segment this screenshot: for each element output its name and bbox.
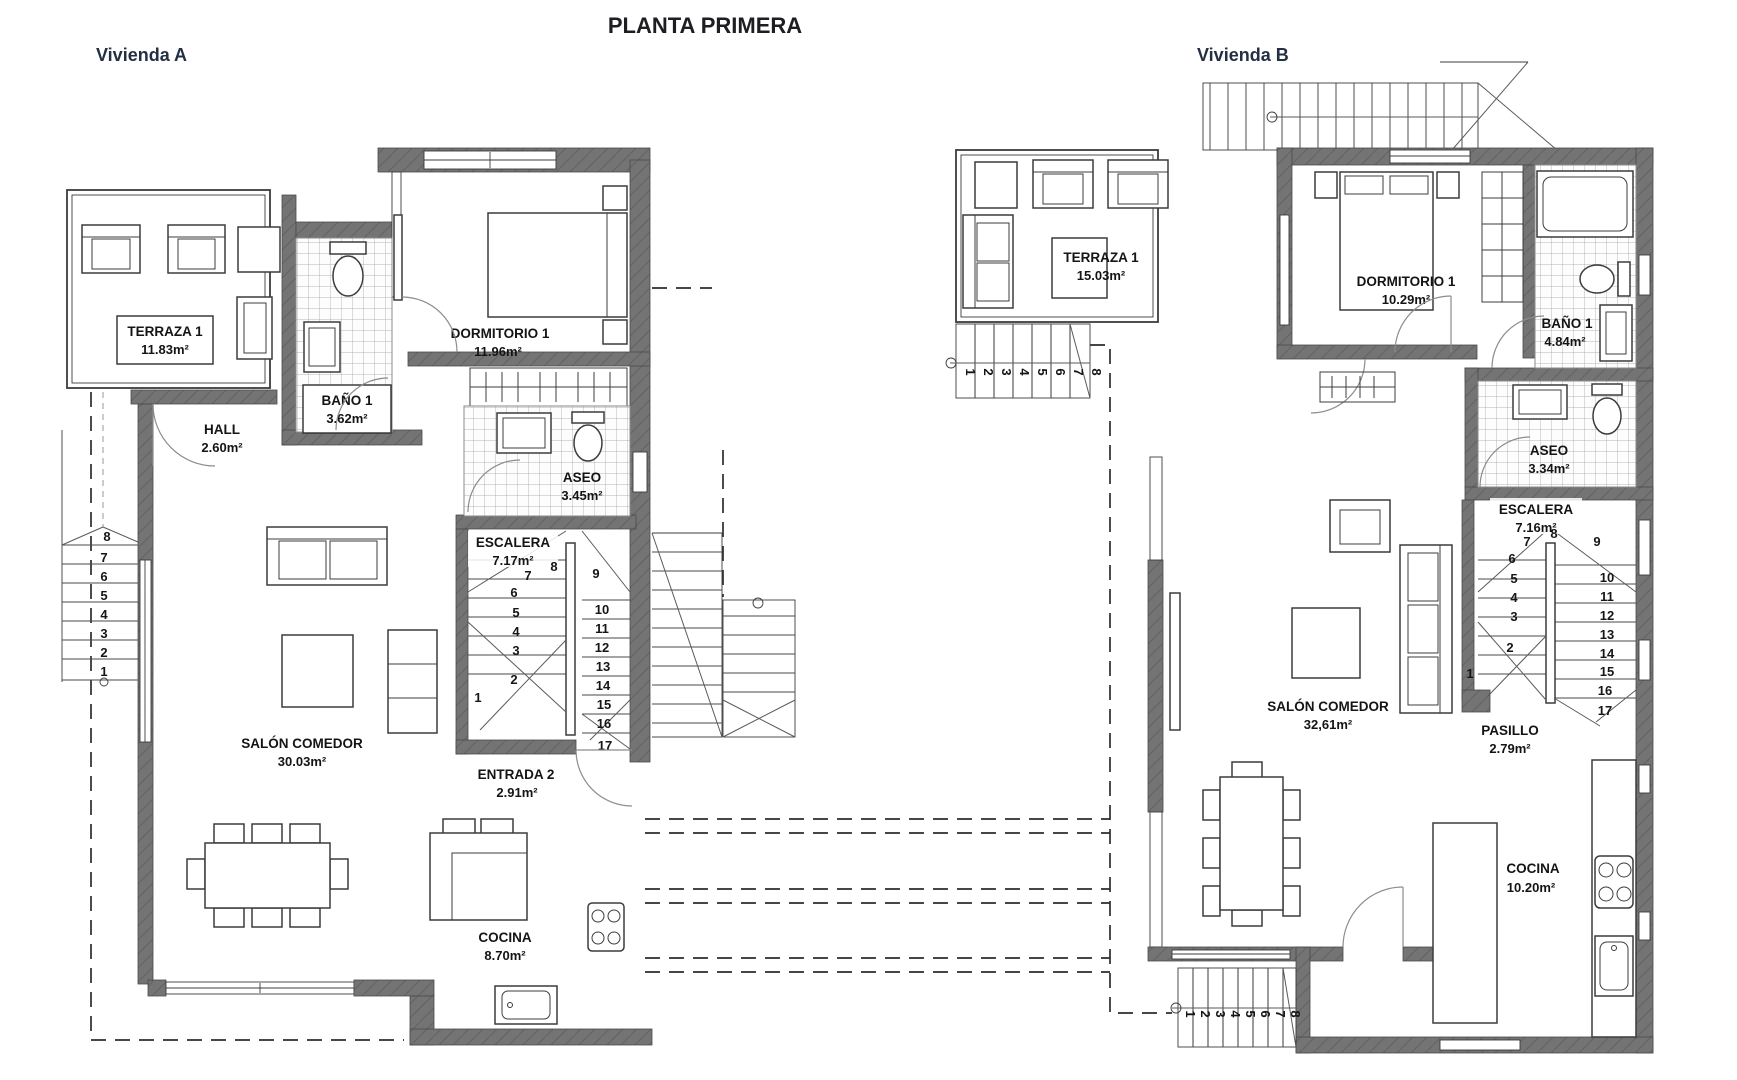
- stair-number: 7: [100, 550, 107, 565]
- room-area: 2.91m²: [496, 785, 538, 800]
- stair-railing: [1546, 543, 1555, 703]
- room-area: 10.29m²: [1382, 292, 1431, 307]
- stair-number: 2: [100, 645, 107, 660]
- room-area: 2.60m²: [201, 440, 243, 455]
- aseo-b: ASEO 3.34m²: [1478, 381, 1636, 487]
- sink-icon: [1595, 936, 1633, 996]
- stair-number: 3: [100, 626, 107, 641]
- salon-comedor-a: SALÓN COMEDOR 30.03m²: [187, 527, 437, 927]
- stair-number: 8: [1288, 1010, 1303, 1017]
- room-area: 11.96m²: [474, 344, 522, 359]
- escalera-b: ESCALERA 7.16m² 1 2 3 4 5 6 7 8 9 10 11 …: [1466, 498, 1636, 726]
- closet-rail-icon: [1320, 372, 1395, 402]
- terrace-a-armchair-icon: [168, 225, 225, 273]
- sofa-icon: [1400, 545, 1452, 713]
- wardrobe-icon: [470, 368, 627, 406]
- escalera-a: ESCALERA 7.17m² 1 2 3 4 5 6 7 8 9 10 11 …: [468, 531, 630, 753]
- stove-icon: [588, 903, 624, 951]
- room-area: 3.45m²: [561, 488, 603, 503]
- nightstand-icon: [1437, 172, 1459, 198]
- room-area: 3.62m²: [326, 411, 368, 426]
- room-area: 7.17m²: [492, 553, 534, 568]
- stair-number: 3: [1510, 609, 1517, 624]
- kitchen-island-icon: [430, 833, 527, 920]
- page-title: PLANTA PRIMERA: [608, 13, 802, 38]
- stair-number: 12: [1600, 608, 1614, 623]
- stair-number: 2: [981, 368, 996, 375]
- stair-number: 8: [1089, 368, 1104, 375]
- bano1-b: BAÑO 1 4.84m²: [1492, 165, 1636, 368]
- stair-number: 7: [1273, 1010, 1288, 1017]
- cocina-b: COCINA 10.20m²: [1433, 760, 1636, 1037]
- stair-number: 6: [100, 569, 107, 584]
- exterior-stairs-lower-a: [723, 598, 795, 737]
- stair-number: 7: [1071, 368, 1086, 375]
- terrace-b-armchair-icon: [1033, 160, 1093, 208]
- radiator-icon: [394, 215, 402, 300]
- room-label: COCINA: [1506, 861, 1559, 876]
- stair-number: 1: [100, 664, 107, 679]
- terrace-a-armchair-icon: [82, 225, 140, 273]
- room-area: 10.20m²: [1507, 880, 1556, 895]
- armchair-icon: [1330, 500, 1390, 552]
- stair-number: 4: [512, 624, 520, 639]
- exterior-stairs-bottom-b: 1 2 3 4 5 6 7 8: [1171, 968, 1303, 1047]
- room-label: DORMITORIO 1: [1357, 274, 1456, 289]
- stair-number: 15: [597, 697, 611, 712]
- aseo-a: ASEO 3.45m²: [464, 406, 630, 516]
- stair-number: 2: [1198, 1010, 1213, 1017]
- room-label: ENTRADA 2: [478, 767, 555, 782]
- stair-number: 16: [597, 716, 611, 731]
- terrace-a: TERRAZA 1 11.83m²: [67, 190, 280, 388]
- nightstand-icon: [603, 320, 627, 344]
- room-area: 30.03m²: [278, 754, 327, 769]
- sink-icon: [1600, 305, 1632, 361]
- room-label: BAÑO 1: [1541, 316, 1592, 331]
- terrace-b-armchair-icon: [1108, 160, 1168, 208]
- kitchen-counter: [1592, 760, 1636, 1037]
- stair-number: 7: [1523, 534, 1530, 549]
- stair-number: 5: [100, 588, 107, 603]
- terrace-stairs-b: 1 2 3 4 5 6 7 8: [946, 324, 1104, 398]
- room-label: SALÓN COMEDOR: [241, 736, 363, 751]
- hall-a: HALL 2.60m²: [153, 404, 243, 466]
- room-area: 3.34m²: [1528, 461, 1570, 476]
- stair-railing: [566, 543, 575, 735]
- coffee-table-icon: [1292, 608, 1360, 678]
- stair-number: 10: [1600, 570, 1614, 585]
- coffee-table-icon: [282, 635, 353, 707]
- stair-number: 3: [999, 368, 1014, 375]
- pergola-b: [1203, 62, 1557, 150]
- toilet-icon: [1592, 384, 1622, 434]
- stair-number: 15: [1600, 664, 1614, 679]
- room-area: 15.03m²: [1077, 268, 1126, 283]
- room-label: TERRAZA 1: [127, 324, 203, 339]
- dining-table-icon: [1203, 762, 1300, 926]
- sink-icon: [497, 413, 551, 453]
- floor-plan-page: PLANTA PRIMERA Vivienda A Vivienda B: [0, 0, 1737, 1080]
- stair-number: 17: [598, 738, 612, 753]
- room-area: 2.79m²: [1489, 741, 1531, 756]
- stair-number: 4: [1510, 590, 1518, 605]
- cocina-a: COCINA 8.70m²: [430, 819, 624, 1024]
- stair-number: 12: [595, 640, 609, 655]
- stair-number: 6: [510, 585, 517, 600]
- terrace-a-bench-icon: [237, 297, 272, 359]
- stair-number: 13: [596, 659, 610, 674]
- bed-icon: [1340, 172, 1433, 310]
- stair-number: 14: [1600, 646, 1615, 661]
- stair-number: 9: [592, 566, 599, 581]
- toilet-icon: [572, 412, 604, 461]
- stair-number: 2: [1506, 640, 1513, 655]
- room-label: ESCALERA: [1499, 502, 1574, 517]
- room-area: 4.84m²: [1544, 334, 1586, 349]
- stair-number: 17: [1598, 703, 1612, 718]
- room-label: ASEO: [563, 470, 601, 485]
- bed-icon: [488, 213, 627, 317]
- terrace-b-table-icon: [975, 162, 1017, 208]
- stair-number: 6: [1053, 368, 1068, 375]
- kitchen-island-icon: [1433, 823, 1497, 1023]
- room-label: COCINA: [478, 930, 531, 945]
- dormitorio1-a: DORMITORIO 1 11.96m²: [402, 186, 627, 406]
- exterior-stairs-right-a: [652, 533, 795, 737]
- stair-number: 5: [1510, 571, 1517, 586]
- stair-number: 8: [550, 559, 557, 574]
- sink-icon: [304, 322, 340, 372]
- room-label: PASILLO: [1481, 723, 1539, 738]
- stair-number: 5: [1243, 1010, 1258, 1017]
- room-area: 8.70m²: [484, 948, 526, 963]
- vivienda-a: TERRAZA 1 11.83m² 1 2 3 4 5 6 7: [62, 148, 795, 1045]
- toilet-icon: [330, 242, 366, 296]
- nightstand-icon: [603, 186, 627, 210]
- stair-number: 7: [524, 568, 531, 583]
- stair-number: 13: [1600, 627, 1614, 642]
- stair-number: 8: [1550, 526, 1557, 541]
- stair-number: 6: [1508, 551, 1515, 566]
- stair-number: 14: [596, 678, 611, 693]
- room-label: TERRAZA 1: [1063, 250, 1139, 265]
- stair-number: 10: [595, 602, 609, 617]
- bathtub-icon: [1537, 171, 1633, 237]
- room-area: 11.83m²: [141, 342, 189, 357]
- stair-number: 5: [512, 605, 519, 620]
- stair-number: 3: [1213, 1010, 1228, 1017]
- stair-number: 6: [1258, 1010, 1273, 1017]
- room-label: SALÓN COMEDOR: [1267, 699, 1389, 714]
- stair-number: 3: [512, 643, 519, 658]
- stair-number: 11: [1600, 589, 1614, 604]
- stair-number: 1: [474, 690, 481, 705]
- wardrobe-icon: [1482, 172, 1523, 302]
- radiator-icon: [1170, 593, 1180, 730]
- stair-number: 2: [510, 672, 517, 687]
- stair-number: 4: [100, 607, 108, 622]
- sink-icon: [495, 986, 557, 1024]
- stair-number: 9: [1593, 534, 1600, 549]
- sink-icon: [1513, 385, 1567, 419]
- stair-number: 4: [1017, 368, 1032, 376]
- salon-comedor-b: SALÓN COMEDOR 32,61m²: [1203, 500, 1452, 947]
- pasillo-b: PASILLO 2.79m²: [1481, 723, 1539, 756]
- dining-table-icon: [187, 824, 348, 927]
- room-label: BAÑO 1: [321, 393, 372, 408]
- room-label: HALL: [204, 422, 240, 437]
- floor-plan-canvas: PLANTA PRIMERA Vivienda A Vivienda B: [0, 0, 1737, 1080]
- dwelling-b-label: Vivienda B: [1197, 45, 1289, 65]
- bano1-a: BAÑO 1 3.62m²: [296, 215, 402, 433]
- terrace-b-sofa-icon: [963, 215, 1013, 308]
- stair-number: 11: [595, 621, 609, 636]
- stair-number: 1: [1183, 1010, 1198, 1017]
- terrace-b: TERRAZA 1 15.03m²: [956, 150, 1168, 322]
- nightstand-icon: [1315, 172, 1337, 198]
- stair-number: 4: [1228, 1010, 1243, 1018]
- stair-number: 5: [1035, 368, 1050, 375]
- room-label: DORMITORIO 1: [451, 326, 550, 341]
- stair-number: 1: [1466, 666, 1473, 681]
- stair-number: 8: [103, 529, 110, 544]
- room-area: 32,61m²: [1304, 717, 1353, 732]
- room-label: ASEO: [1530, 443, 1568, 458]
- exterior-stairs-left-a: 1 2 3 4 5 6 7 8: [62, 392, 145, 690]
- stove-icon: [1595, 856, 1633, 908]
- stair-number: 16: [1598, 683, 1612, 698]
- stair-number: 1: [963, 368, 978, 375]
- sofa-icon: [267, 527, 387, 585]
- dwelling-a-label: Vivienda A: [96, 45, 187, 65]
- room-label: ESCALERA: [476, 535, 551, 550]
- vivienda-b: TERRAZA 1 15.03m² 1 2 3 4 5 6 7 8: [946, 62, 1653, 1053]
- sideboard-icon: [388, 630, 437, 733]
- terrace-a-table-icon: [238, 227, 280, 272]
- entrada2-a: ENTRADA 2 2.91m²: [478, 750, 632, 806]
- toilet-icon: [1580, 262, 1630, 296]
